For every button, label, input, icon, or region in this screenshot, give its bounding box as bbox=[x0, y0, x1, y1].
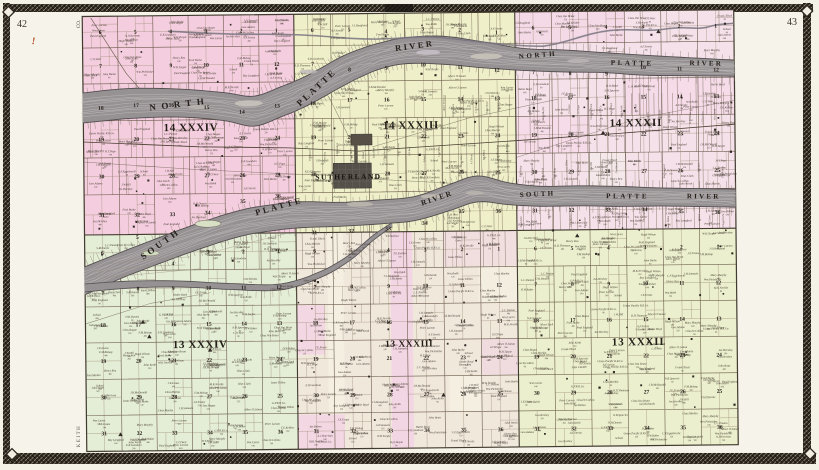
svg-text:13: 13 bbox=[716, 316, 722, 322]
svg-text:26: 26 bbox=[678, 168, 684, 174]
svg-text:J.S.Hoagland: J.S.Hoagland bbox=[455, 107, 471, 111]
svg-text:Geo.Adams: Geo.Adams bbox=[241, 25, 255, 29]
svg-text:Isaac Dillon: Isaac Dillon bbox=[270, 380, 286, 384]
svg-text:16: 16 bbox=[384, 97, 390, 103]
svg-text:Isaac Dillon: Isaac Dillon bbox=[447, 255, 463, 259]
svg-text:SUTHERLAND: SUTHERLAND bbox=[315, 172, 381, 182]
svg-text:19: 19 bbox=[313, 357, 319, 363]
svg-text:F.M.Bishop: F.M.Bishop bbox=[683, 384, 698, 388]
svg-text:Jos.Hershey: Jos.Hershey bbox=[230, 310, 245, 314]
svg-text:D.W.Baker: D.W.Baker bbox=[282, 346, 296, 350]
svg-text:A.F.Streitz: A.F.Streitz bbox=[707, 379, 721, 383]
svg-text:Union Pacific R.R.Co.: Union Pacific R.R.Co. bbox=[599, 105, 602, 128]
svg-text:Peter Larson: Peter Larson bbox=[682, 104, 699, 108]
svg-text:S.Richards: S.Richards bbox=[424, 273, 437, 277]
svg-text:9: 9 bbox=[170, 63, 173, 69]
svg-text:W.H.Turpie: W.H.Turpie bbox=[173, 65, 187, 69]
svg-text:Chas.Van Brunt: Chas.Van Brunt bbox=[628, 16, 647, 20]
svg-text:G.P.R.R.Co.: G.P.R.R.Co. bbox=[214, 428, 228, 432]
svg-text:Chas.Van Brunt: Chas.Van Brunt bbox=[590, 103, 593, 119]
svg-text:J.H.Samuels: J.H.Samuels bbox=[375, 423, 390, 427]
svg-text:4: 4 bbox=[607, 246, 610, 252]
svg-text:Chas.Bogue: Chas.Bogue bbox=[201, 403, 216, 407]
svg-text:H.T.Pope: H.T.Pope bbox=[201, 439, 214, 443]
svg-text:36: 36 bbox=[715, 210, 721, 216]
svg-text:A.F.Streitz: A.F.Streitz bbox=[578, 361, 592, 365]
svg-text:4: 4 bbox=[169, 29, 172, 35]
svg-text:11: 11 bbox=[457, 65, 463, 71]
svg-text:13: 13 bbox=[277, 321, 283, 327]
svg-text:18: 18 bbox=[100, 323, 106, 329]
svg-text:Frank Tilsch: Frank Tilsch bbox=[716, 14, 732, 18]
svg-text:C.F.Eggebrecht: C.F.Eggebrecht bbox=[667, 274, 685, 278]
svg-text:Hattie Boyd: Hattie Boyd bbox=[647, 327, 662, 331]
svg-text:J.E.Evans: J.E.Evans bbox=[338, 417, 350, 421]
svg-text:John Keith: John Keith bbox=[143, 363, 156, 367]
svg-text:F.M.Bishop: F.M.Bishop bbox=[312, 121, 327, 125]
svg-text:J.H.Samuels: J.H.Samuels bbox=[423, 89, 438, 93]
svg-text:Jos.Hershey: Jos.Hershey bbox=[535, 413, 550, 417]
svg-text:Hattie Boyd: Hattie Boyd bbox=[517, 87, 532, 91]
svg-text:13 XXXIII: 13 XXXIII bbox=[385, 339, 433, 350]
svg-text:7: 7 bbox=[101, 291, 104, 297]
svg-text:Henry Rea: Henry Rea bbox=[172, 56, 186, 60]
svg-text:Chas.Bogue: Chas.Bogue bbox=[523, 348, 538, 352]
svg-text:10: 10 bbox=[643, 281, 649, 287]
svg-text:John Keith: John Keith bbox=[568, 341, 581, 345]
svg-text:T.E.Keliher: T.E.Keliher bbox=[566, 21, 580, 25]
svg-text:School: School bbox=[229, 67, 237, 71]
svg-text:30: 30 bbox=[313, 393, 319, 399]
svg-text:Frank Tilsch: Frank Tilsch bbox=[309, 236, 325, 240]
svg-text:J.E.Evans: J.E.Evans bbox=[193, 400, 205, 404]
svg-text:N.B.Spurrier: N.B.Spurrier bbox=[664, 376, 681, 380]
svg-text:John Werth: John Werth bbox=[505, 421, 519, 425]
svg-text:F.M.Bishop: F.M.Bishop bbox=[343, 122, 358, 126]
svg-text:Hugh Wilson: Hugh Wilson bbox=[481, 243, 498, 247]
svg-text:27: 27 bbox=[207, 394, 213, 400]
svg-text:T.E.Keliher: T.E.Keliher bbox=[388, 21, 402, 25]
svg-text:28: 28 bbox=[607, 390, 613, 396]
svg-text:J.E.Evans: J.E.Evans bbox=[315, 345, 327, 349]
svg-text:23: 23 bbox=[460, 355, 466, 361]
svg-text:43: 43 bbox=[787, 17, 797, 28]
svg-text:Jas.Belton: Jas.Belton bbox=[389, 290, 402, 294]
svg-text:Hattie Boyd: Hattie Boyd bbox=[710, 82, 725, 86]
svg-text:32: 32 bbox=[569, 208, 575, 214]
svg-text:10: 10 bbox=[423, 283, 429, 289]
svg-text:School: School bbox=[93, 313, 101, 317]
svg-text:L.C.Paxton: L.C.Paxton bbox=[438, 145, 441, 158]
svg-text:35: 35 bbox=[678, 209, 684, 215]
svg-text:Albert O.Samot: Albert O.Samot bbox=[496, 342, 515, 346]
svg-text:J.E.Evans: J.E.Evans bbox=[540, 246, 552, 250]
svg-text:W.H.Turpie: W.H.Turpie bbox=[712, 144, 726, 148]
svg-text:Jos.Hershey: Jos.Hershey bbox=[191, 215, 206, 219]
svg-text:13: 13 bbox=[497, 319, 503, 325]
svg-text:L.C.Paxton: L.C.Paxton bbox=[501, 308, 516, 312]
svg-text:25: 25 bbox=[714, 168, 720, 174]
svg-text:Isaac Dillon: Isaac Dillon bbox=[667, 215, 670, 229]
svg-text:J.W.Hill: J.W.Hill bbox=[165, 169, 175, 173]
svg-text:Hattie Boyd: Hattie Boyd bbox=[233, 240, 248, 244]
svg-text:J.B.McDonald: J.B.McDonald bbox=[518, 258, 535, 262]
svg-text:F.M.Bishop: F.M.Bishop bbox=[236, 56, 251, 60]
svg-text:16: 16 bbox=[171, 322, 177, 328]
svg-text:Wm.Robb: Wm.Robb bbox=[205, 181, 217, 185]
svg-text:J.H.Samuels: J.H.Samuels bbox=[179, 406, 194, 410]
svg-text:Hugh Wilson: Hugh Wilson bbox=[134, 352, 151, 356]
svg-text:Geo.Adams: Geo.Adams bbox=[338, 143, 352, 147]
svg-text:Chas.Van Brunt: Chas.Van Brunt bbox=[628, 362, 647, 366]
svg-text:Ray Langford: Ray Langford bbox=[663, 164, 666, 180]
svg-text:Frank Tilsch: Frank Tilsch bbox=[618, 213, 621, 227]
svg-text:J.W.Hill: J.W.Hill bbox=[469, 383, 479, 387]
svg-text:T.E.Keliher: T.E.Keliher bbox=[393, 251, 407, 255]
svg-text:14 XXXII: 14 XXXII bbox=[610, 117, 663, 130]
svg-text:N.B.Spurrier: N.B.Spurrier bbox=[459, 220, 476, 224]
svg-text:J.S.Hoagland: J.S.Hoagland bbox=[514, 21, 530, 25]
svg-text:RIVER: RIVER bbox=[687, 192, 721, 200]
svg-text:Chas.Van Brunt: Chas.Van Brunt bbox=[334, 91, 353, 95]
svg-text:Albert O.Samot: Albert O.Samot bbox=[447, 74, 466, 78]
svg-text:Peter Larson: Peter Larson bbox=[598, 290, 615, 294]
svg-text:R.D.Thomson: R.D.Thomson bbox=[577, 161, 580, 177]
svg-text:School: School bbox=[140, 169, 148, 173]
svg-text:5: 5 bbox=[568, 25, 571, 31]
svg-text:Silas Clark: Silas Clark bbox=[237, 369, 251, 373]
svg-text:12: 12 bbox=[274, 62, 280, 68]
svg-text:Henry Rea: Henry Rea bbox=[103, 368, 117, 372]
svg-text:J.W.Hill: J.W.Hill bbox=[614, 312, 624, 316]
svg-text:15: 15 bbox=[641, 95, 647, 101]
svg-text:Chas.Markin: Chas.Markin bbox=[494, 271, 510, 275]
svg-text:School: School bbox=[723, 27, 731, 31]
svg-text:31: 31 bbox=[99, 213, 105, 219]
svg-text:Union Pacific R.R.Co.: Union Pacific R.R.Co. bbox=[414, 245, 440, 249]
svg-text:Ray Langford: Ray Langford bbox=[675, 218, 692, 222]
svg-text:Chas.Markin: Chas.Markin bbox=[603, 380, 619, 384]
svg-text:Jos.Hershey: Jos.Hershey bbox=[610, 134, 625, 138]
svg-text:17: 17 bbox=[570, 318, 576, 324]
svg-text:John Werth: John Werth bbox=[679, 181, 693, 185]
svg-text:Henry Rea: Henry Rea bbox=[565, 239, 579, 243]
svg-text:Ray Langford: Ray Langford bbox=[242, 73, 259, 77]
svg-text:3: 3 bbox=[421, 27, 424, 33]
svg-text:29: 29 bbox=[136, 395, 142, 401]
svg-text:9: 9 bbox=[607, 282, 610, 288]
svg-text:John Keith: John Keith bbox=[530, 325, 543, 329]
svg-text:Albert O.Samot: Albert O.Samot bbox=[243, 407, 262, 411]
svg-text:Paul England: Paul England bbox=[576, 325, 594, 329]
svg-text:20: 20 bbox=[568, 132, 574, 138]
svg-text:Henry Rea: Henry Rea bbox=[609, 177, 623, 181]
svg-text:Frank Tilsch: Frank Tilsch bbox=[350, 148, 353, 162]
svg-text:Union Pacific R.R.Co.: Union Pacific R.R.Co. bbox=[253, 127, 279, 131]
svg-text:1: 1 bbox=[275, 28, 278, 34]
svg-text:19: 19 bbox=[98, 137, 104, 143]
svg-text:Mary Murphy: Mary Murphy bbox=[709, 273, 727, 277]
svg-text:J.H.Samuels: J.H.Samuels bbox=[449, 329, 464, 333]
svg-text:S.Richards: S.Richards bbox=[465, 369, 478, 373]
svg-text:9: 9 bbox=[385, 66, 388, 72]
svg-text:27: 27 bbox=[204, 173, 210, 179]
svg-text:J.E.Evans: J.E.Evans bbox=[687, 251, 699, 255]
svg-text:D.W.Baker: D.W.Baker bbox=[605, 84, 619, 88]
svg-text:18: 18 bbox=[533, 318, 539, 324]
svg-text:John Keith: John Keith bbox=[357, 329, 370, 333]
svg-text:C.O.Weir: C.O.Weir bbox=[628, 84, 640, 88]
svg-text:A.F.Streitz: A.F.Streitz bbox=[461, 439, 475, 443]
svg-text:J.H.Samuels: J.H.Samuels bbox=[564, 177, 579, 181]
svg-text:John Bratt: John Bratt bbox=[92, 386, 105, 390]
svg-text:F.M.Bishop: F.M.Bishop bbox=[98, 350, 113, 354]
svg-text:15: 15 bbox=[206, 322, 212, 328]
svg-text:R.D.Thomson: R.D.Thomson bbox=[612, 388, 629, 392]
svg-text:Paul England: Paul England bbox=[721, 379, 739, 383]
svg-text:Hugh Wilson: Hugh Wilson bbox=[610, 102, 613, 117]
svg-text:J.B.McDonald: J.B.McDonald bbox=[534, 126, 551, 130]
svg-text:John Burke: John Burke bbox=[505, 379, 519, 383]
svg-text:Peter Larson: Peter Larson bbox=[460, 143, 477, 147]
svg-text:Albert O.Samot: Albert O.Samot bbox=[668, 345, 687, 349]
svg-text:13: 13 bbox=[714, 94, 720, 100]
svg-text:Chas.Markin: Chas.Markin bbox=[346, 248, 362, 252]
svg-text:A.J.Harrison: A.J.Harrison bbox=[715, 434, 732, 438]
svg-text:34: 34 bbox=[422, 221, 428, 227]
svg-text:Geo.Adams: Geo.Adams bbox=[671, 325, 685, 329]
svg-text:34: 34 bbox=[424, 428, 430, 434]
svg-text:C.F.Eggebrecht: C.F.Eggebrecht bbox=[118, 169, 136, 173]
svg-text:Fred Burke: Fred Burke bbox=[375, 32, 390, 36]
svg-text:Jos.Hershey: Jos.Hershey bbox=[171, 297, 186, 301]
svg-text:John Keith: John Keith bbox=[271, 31, 284, 35]
svg-text:Silas Clark: Silas Clark bbox=[681, 174, 695, 178]
svg-text:31: 31 bbox=[312, 230, 318, 236]
svg-text:22: 22 bbox=[643, 353, 649, 359]
svg-text:Geo.Adams: Geo.Adams bbox=[628, 159, 642, 163]
svg-text:Wm.Robb: Wm.Robb bbox=[447, 271, 459, 275]
svg-text:20: 20 bbox=[134, 137, 140, 143]
svg-text:11: 11 bbox=[679, 281, 685, 287]
svg-text:C.O.Weir: C.O.Weir bbox=[568, 104, 571, 113]
svg-text:W.H.Turpie: W.H.Turpie bbox=[242, 312, 256, 316]
svg-text:PLATTE: PLATTE bbox=[606, 192, 649, 200]
svg-text:R.D.Thomson: R.D.Thomson bbox=[452, 103, 455, 119]
svg-text:36: 36 bbox=[275, 194, 281, 200]
svg-text:Mary Murphy: Mary Murphy bbox=[87, 149, 105, 153]
svg-text:29: 29 bbox=[571, 390, 577, 396]
svg-text:Chas.Van Brunt: Chas.Van Brunt bbox=[90, 291, 109, 295]
svg-text:Hugh Wilson: Hugh Wilson bbox=[538, 353, 555, 357]
svg-text:John Bratt: John Bratt bbox=[601, 237, 614, 241]
svg-text:Chas.Markin: Chas.Markin bbox=[480, 288, 496, 292]
svg-text:Hattie Boyd: Hattie Boyd bbox=[480, 355, 495, 359]
svg-text:J.E.Evans: J.E.Evans bbox=[641, 293, 653, 297]
svg-text:M.K.Neville: M.K.Neville bbox=[224, 85, 240, 89]
svg-text:Jos.Hershey: Jos.Hershey bbox=[266, 258, 281, 262]
svg-text:17: 17 bbox=[347, 98, 353, 104]
svg-text:34: 34 bbox=[207, 430, 213, 436]
svg-text:M.K.Neville: M.K.Neville bbox=[503, 322, 519, 326]
svg-text:23: 23 bbox=[680, 353, 686, 359]
svg-text:32: 32 bbox=[348, 229, 354, 235]
svg-text:Henry Rea: Henry Rea bbox=[342, 241, 356, 245]
svg-text:25: 25 bbox=[495, 170, 501, 176]
svg-text:Hugh Wilson: Hugh Wilson bbox=[488, 124, 505, 128]
svg-text:Mary Murphy: Mary Murphy bbox=[83, 72, 101, 76]
svg-text:Wm.Robb: Wm.Robb bbox=[240, 295, 252, 299]
svg-text:Chas.Markin: Chas.Markin bbox=[492, 294, 508, 298]
svg-text:34: 34 bbox=[205, 210, 211, 216]
svg-text:Wm.Robb: Wm.Robb bbox=[686, 100, 698, 104]
svg-text:D.W.Baker: D.W.Baker bbox=[520, 287, 534, 291]
svg-text:35: 35 bbox=[680, 425, 686, 431]
svg-text:Hugh Wilson: Hugh Wilson bbox=[640, 232, 657, 236]
svg-text:Mary Murphy: Mary Murphy bbox=[703, 48, 721, 52]
svg-text:6: 6 bbox=[532, 25, 535, 31]
svg-text:Jos.Hershey: Jos.Hershey bbox=[226, 34, 241, 38]
svg-text:Chas.W.Collins: Chas.W.Collins bbox=[685, 329, 704, 333]
svg-text:25: 25 bbox=[497, 391, 503, 397]
svg-text:O.H.Dennis: O.H.Dennis bbox=[608, 420, 623, 424]
svg-text:John Burke: John Burke bbox=[451, 348, 465, 352]
svg-text:14 XXXIII: 14 XXXIII bbox=[383, 119, 439, 132]
svg-text:H.T.Pope: H.T.Pope bbox=[273, 162, 286, 166]
svg-text:Paul England: Paul England bbox=[439, 126, 457, 130]
svg-text:J.B.McDonald: J.B.McDonald bbox=[443, 314, 460, 318]
svg-text:18: 18 bbox=[310, 101, 316, 107]
svg-text:F.M.Bishop: F.M.Bishop bbox=[576, 252, 591, 256]
svg-text:Peter Larson: Peter Larson bbox=[377, 103, 394, 107]
svg-text:Union Pacific R.R.Co.: Union Pacific R.R.Co. bbox=[591, 307, 617, 311]
svg-text:28: 28 bbox=[385, 171, 391, 177]
svg-text:24: 24 bbox=[495, 133, 501, 139]
svg-text:L.C.Paxton: L.C.Paxton bbox=[475, 100, 478, 113]
svg-text:14: 14 bbox=[239, 110, 245, 116]
svg-text:Chas.Markin: Chas.Markin bbox=[485, 128, 501, 132]
svg-text:School: School bbox=[532, 119, 540, 123]
svg-text:G.P.R.R.Co.: G.P.R.R.Co. bbox=[571, 384, 585, 388]
svg-text:Union Pacific R.R.Co.: Union Pacific R.R.Co. bbox=[603, 365, 629, 369]
svg-text:14: 14 bbox=[677, 94, 683, 100]
svg-text:13: 13 bbox=[494, 96, 500, 102]
svg-text:Geo.Adams: Geo.Adams bbox=[203, 310, 217, 314]
svg-text:11: 11 bbox=[677, 66, 683, 72]
svg-text:Hugh Wilson: Hugh Wilson bbox=[304, 251, 321, 255]
svg-text:H.T.Pope: H.T.Pope bbox=[104, 149, 117, 153]
svg-text:Isaac Dillon: Isaac Dillon bbox=[457, 277, 473, 281]
svg-text:2: 2 bbox=[461, 247, 464, 253]
svg-text:Geo.Adams: Geo.Adams bbox=[575, 288, 589, 292]
svg-text:22: 22 bbox=[206, 358, 212, 364]
svg-text:Henry Rea: Henry Rea bbox=[122, 353, 136, 357]
svg-text:J.S.Hoagland: J.S.Hoagland bbox=[352, 23, 368, 27]
svg-text:10: 10 bbox=[420, 62, 426, 68]
svg-text:E.R.Goodwin: E.R.Goodwin bbox=[336, 142, 339, 157]
svg-text:Geo.Adams: Geo.Adams bbox=[721, 209, 735, 213]
svg-text:Jos.Hershey: Jos.Hershey bbox=[669, 399, 684, 403]
svg-text:C.O.Weir: C.O.Weir bbox=[90, 57, 102, 61]
svg-text:Chas.Bogue: Chas.Bogue bbox=[575, 314, 590, 318]
svg-text:21: 21 bbox=[171, 358, 177, 364]
svg-text:Union Pacific R.R.Co.: Union Pacific R.R.Co. bbox=[89, 131, 115, 135]
svg-text:Wm.Pielsticker: Wm.Pielsticker bbox=[429, 430, 447, 434]
svg-text:1: 1 bbox=[714, 24, 717, 30]
svg-text:G.P.R.R.Co.: G.P.R.R.Co. bbox=[487, 233, 501, 237]
svg-text:27: 27 bbox=[421, 171, 427, 177]
svg-text:19: 19 bbox=[531, 133, 537, 139]
svg-text:John Keith: John Keith bbox=[388, 402, 401, 406]
svg-text:3: 3 bbox=[641, 24, 644, 30]
svg-text:Peter Larson: Peter Larson bbox=[419, 326, 436, 330]
svg-text:26: 26 bbox=[458, 169, 464, 175]
svg-text:W.H.Turpie: W.H.Turpie bbox=[390, 440, 404, 444]
svg-text:Chas.Markin: Chas.Markin bbox=[533, 366, 549, 370]
svg-text:Ray Langford: Ray Langford bbox=[555, 143, 572, 147]
svg-text:2: 2 bbox=[240, 29, 243, 35]
svg-text:Mary Murphy: Mary Murphy bbox=[370, 20, 388, 24]
svg-text:31: 31 bbox=[314, 429, 320, 435]
svg-text:R.D.Thomson: R.D.Thomson bbox=[553, 243, 570, 247]
svg-text:Fred Burke: Fred Burke bbox=[269, 71, 284, 75]
svg-text:35: 35 bbox=[240, 199, 246, 205]
svg-text:Chas.Van Brunt: Chas.Van Brunt bbox=[151, 136, 170, 140]
svg-text:30: 30 bbox=[534, 391, 540, 397]
svg-text:Hattie Boyd: Hattie Boyd bbox=[493, 441, 508, 445]
svg-text:28: 28 bbox=[387, 392, 393, 398]
svg-text:Chas.Markin: Chas.Markin bbox=[165, 390, 181, 394]
svg-text:J.E.Evans: J.E.Evans bbox=[409, 240, 421, 244]
svg-text:W.H.Turpie: W.H.Turpie bbox=[499, 350, 513, 354]
svg-text:5: 5 bbox=[134, 30, 137, 36]
svg-text:School: School bbox=[423, 155, 426, 162]
svg-text:RIVER: RIVER bbox=[689, 59, 723, 68]
svg-text:7: 7 bbox=[311, 62, 314, 68]
svg-text:8: 8 bbox=[134, 63, 137, 69]
svg-text:Geo.Adams: Geo.Adams bbox=[338, 370, 352, 374]
svg-text:Frank Tilsch: Frank Tilsch bbox=[674, 365, 690, 369]
svg-text:Wm.Robb: Wm.Robb bbox=[665, 291, 677, 295]
svg-text:J.B.McDonald: J.B.McDonald bbox=[130, 390, 147, 394]
svg-text:Wm.Pielsticker: Wm.Pielsticker bbox=[308, 262, 326, 266]
svg-text:5: 5 bbox=[348, 27, 351, 33]
svg-text:J.B.McDonald: J.B.McDonald bbox=[649, 383, 666, 387]
svg-text:12: 12 bbox=[713, 67, 719, 73]
svg-text:Chas.W.Collins: Chas.W.Collins bbox=[160, 183, 179, 187]
svg-text:John Burke: John Burke bbox=[518, 30, 532, 34]
svg-text:28: 28 bbox=[605, 169, 611, 175]
svg-text:5: 5 bbox=[350, 248, 353, 254]
svg-text:D.W.Baker: D.W.Baker bbox=[447, 216, 461, 220]
svg-text:J.B.McDonald: J.B.McDonald bbox=[369, 85, 386, 89]
svg-text:Albert O.Samot: Albert O.Samot bbox=[198, 167, 217, 171]
svg-text:C.O.Weir: C.O.Weir bbox=[295, 71, 307, 75]
svg-text:Chas.W.Collins: Chas.W.Collins bbox=[577, 398, 596, 402]
svg-text:31: 31 bbox=[534, 427, 540, 433]
svg-text:Peter Larson: Peter Larson bbox=[264, 422, 281, 426]
svg-text:Chas.W.Collins: Chas.W.Collins bbox=[295, 348, 314, 352]
svg-text:S.Richards: S.Richards bbox=[96, 246, 109, 250]
svg-text:Paul England: Paul England bbox=[133, 127, 151, 131]
svg-text:Silas Clark: Silas Clark bbox=[238, 382, 252, 386]
svg-text:School: School bbox=[349, 436, 357, 440]
svg-text:F.M.Bishop: F.M.Bishop bbox=[137, 330, 152, 334]
svg-text:John Burke: John Burke bbox=[268, 49, 282, 53]
svg-text:22: 22 bbox=[641, 132, 647, 138]
svg-text:21: 21 bbox=[387, 356, 393, 362]
svg-text:23: 23 bbox=[242, 358, 248, 364]
